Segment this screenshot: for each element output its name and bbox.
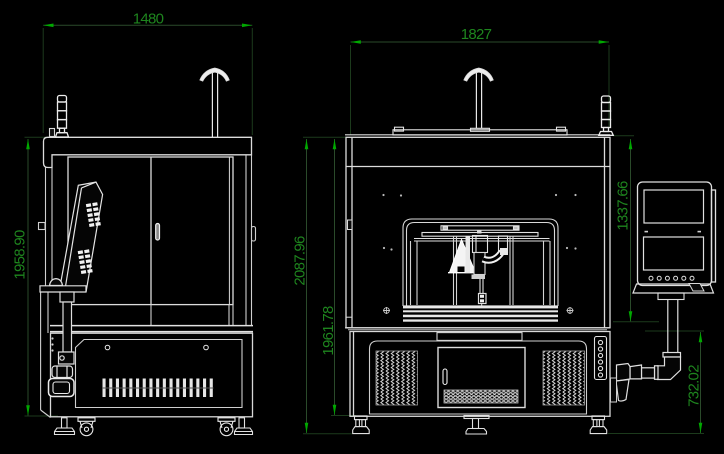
svg-text:2087.96: 2087.96 bbox=[292, 236, 309, 286]
svg-text:1480: 1480 bbox=[133, 11, 164, 28]
svg-text:1337.66: 1337.66 bbox=[615, 181, 632, 231]
svg-text:1958.90: 1958.90 bbox=[12, 230, 29, 280]
svg-text:1827: 1827 bbox=[461, 26, 492, 43]
svg-text:1961.78: 1961.78 bbox=[320, 306, 337, 356]
svg-text:732.02: 732.02 bbox=[686, 365, 703, 407]
